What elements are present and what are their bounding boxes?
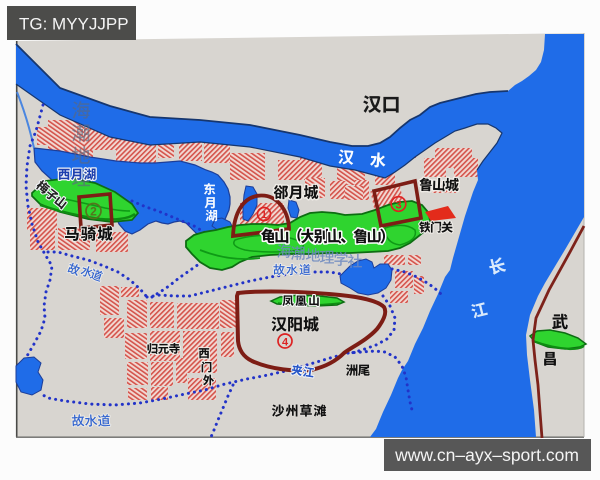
svg-text:TG: MYYJJPP: TG: MYYJJPP [19, 15, 129, 34]
svg-text:4: 4 [282, 336, 289, 348]
svg-text:1: 1 [261, 210, 267, 221]
svg-text:www.cn–ayx–sport.com: www.cn–ayx–sport.com [394, 445, 579, 465]
svg-text:2: 2 [90, 205, 97, 219]
svg-text:3: 3 [395, 200, 401, 212]
